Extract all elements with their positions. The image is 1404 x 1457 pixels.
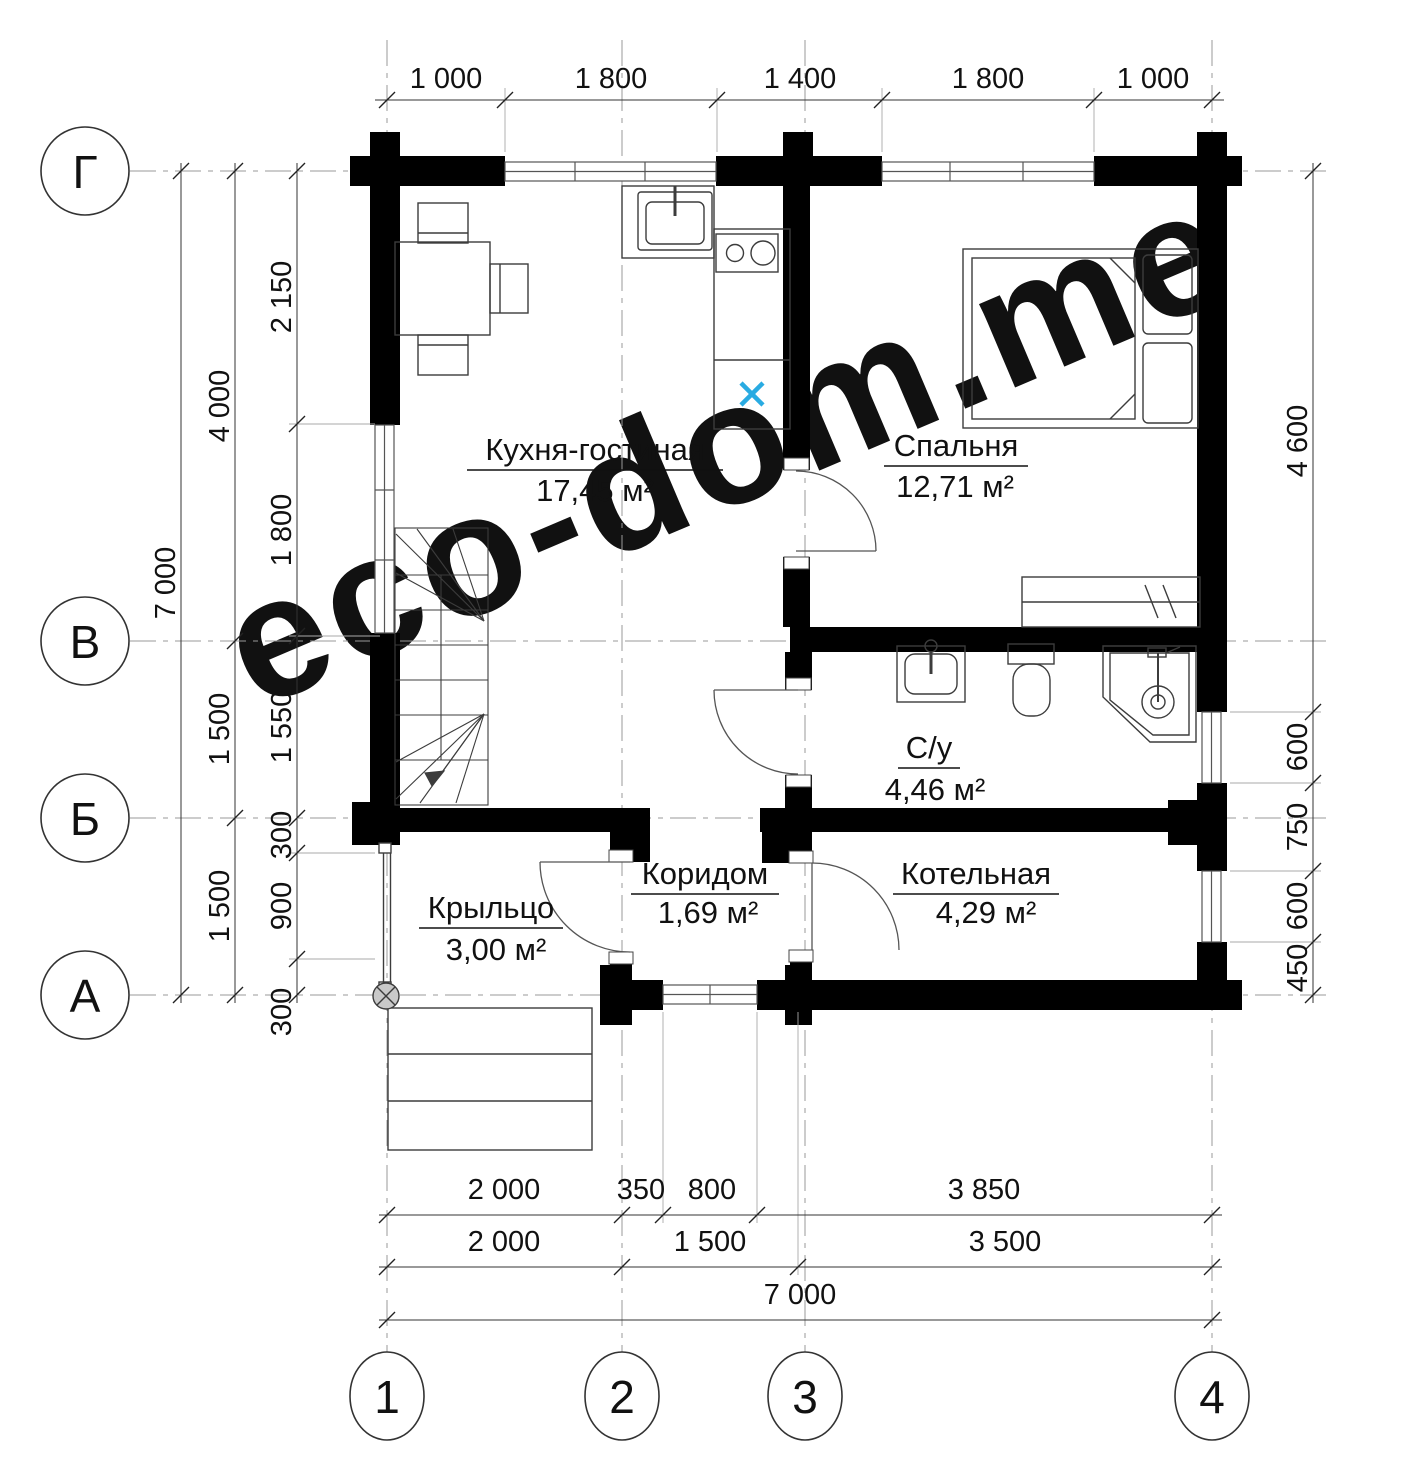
dim-label: 350 — [617, 1174, 665, 1206]
dim-label: 1 500 — [204, 693, 236, 766]
window-bottom — [663, 985, 757, 1004]
axis-label-g: Г — [73, 146, 98, 198]
kitchen-sink-icon — [622, 186, 714, 258]
dim-label: 1 000 — [410, 63, 483, 95]
dimension-labels-right: 4 600 600 750 600 450 — [1282, 405, 1314, 992]
room-label-corridor: Коридом 1,69 м² — [631, 856, 779, 930]
room-name: Котельная — [901, 856, 1051, 891]
floor-plan-page: eco-dom.me — [0, 0, 1404, 1457]
room-area: 4,29 м² — [936, 895, 1037, 930]
dimension-labels-top: 1 000 1 800 1 400 1 800 1 000 — [410, 63, 1190, 95]
room-area: 1,69 м² — [658, 895, 759, 930]
dim-label: 3 850 — [948, 1174, 1021, 1206]
dim-label: 750 — [1282, 803, 1314, 851]
dim-label: 3 500 — [969, 1226, 1042, 1258]
dim-label: 7 000 — [764, 1279, 837, 1311]
window-top-right — [882, 162, 1094, 181]
room-name: Кухня-гостиная — [485, 432, 704, 467]
toilet-icon — [1008, 644, 1054, 716]
dim-label: 2 000 — [468, 1174, 541, 1206]
room-area: 4,46 м² — [885, 772, 986, 807]
axis-label-3: 3 — [792, 1371, 818, 1423]
room-label-porch: Крыльцо 3,00 м² — [419, 890, 563, 967]
dim-label: 4 000 — [204, 370, 236, 443]
dim-label: 450 — [1282, 944, 1314, 992]
dim-label: 2 000 — [468, 1226, 541, 1258]
window-right-boiler — [1202, 871, 1221, 942]
dim-label: 800 — [688, 1174, 736, 1206]
watermark: eco-dom.me — [196, 148, 1259, 744]
dim-label: 1 550 — [266, 691, 298, 764]
room-label-boiler: Котельная 4,29 м² — [893, 856, 1059, 930]
bathroom-door — [714, 690, 798, 774]
dim-label: 1 800 — [952, 63, 1025, 95]
room-name: С/у — [906, 730, 953, 765]
porch-railing — [379, 843, 391, 992]
shower-icon — [1103, 646, 1196, 742]
window-left — [375, 425, 394, 633]
room-area: 17,45 м² — [536, 473, 654, 508]
dim-label: 2 150 — [266, 261, 298, 334]
dim-label: 300 — [266, 811, 298, 859]
dim-label: 1 000 — [1117, 63, 1190, 95]
room-name: Спальня — [894, 428, 1019, 463]
window-top-left — [505, 162, 716, 181]
dim-label: 1 500 — [674, 1226, 747, 1258]
room-area: 3,00 м² — [446, 932, 547, 967]
dining-table-icon — [395, 203, 528, 375]
dim-label: 4 600 — [1282, 405, 1314, 478]
axis-label-v: В — [70, 616, 101, 668]
room-label-bedroom: Спальня 12,71 м² — [884, 428, 1028, 504]
dim-label: 1 800 — [266, 494, 298, 567]
axis-label-b: Б — [70, 793, 100, 845]
window-right-bath — [1202, 712, 1221, 783]
dim-label: 900 — [266, 882, 298, 930]
axis-label-4: 4 — [1199, 1371, 1225, 1423]
room-label-wc: С/у 4,46 м² — [885, 730, 986, 807]
room-name: Коридом — [642, 856, 769, 891]
watermark-text: eco-dom.me — [196, 148, 1259, 744]
stove-icon — [716, 234, 778, 272]
dresser-icon — [1022, 577, 1200, 627]
room-area: 12,71 м² — [896, 469, 1014, 504]
dim-label: 600 — [1282, 723, 1314, 771]
porch-steps-icon — [388, 1008, 592, 1150]
dim-label: 600 — [1282, 882, 1314, 930]
dim-label: 1 400 — [764, 63, 837, 95]
boiler-door — [812, 863, 899, 950]
dimension-labels-bottom: 2 000 350 800 3 850 2 000 1 500 3 500 7 … — [468, 1174, 1042, 1311]
dim-label: 7 000 — [150, 547, 182, 620]
axis-label-a: А — [70, 970, 101, 1022]
dim-label: 1 800 — [575, 63, 648, 95]
axis-label-1: 1 — [374, 1371, 400, 1423]
dim-label: 1 500 — [204, 870, 236, 943]
room-name: Крыльцо — [428, 890, 554, 925]
dim-label: 300 — [266, 988, 298, 1036]
porch-column-icon — [373, 983, 399, 1009]
axis-label-2: 2 — [609, 1371, 635, 1423]
